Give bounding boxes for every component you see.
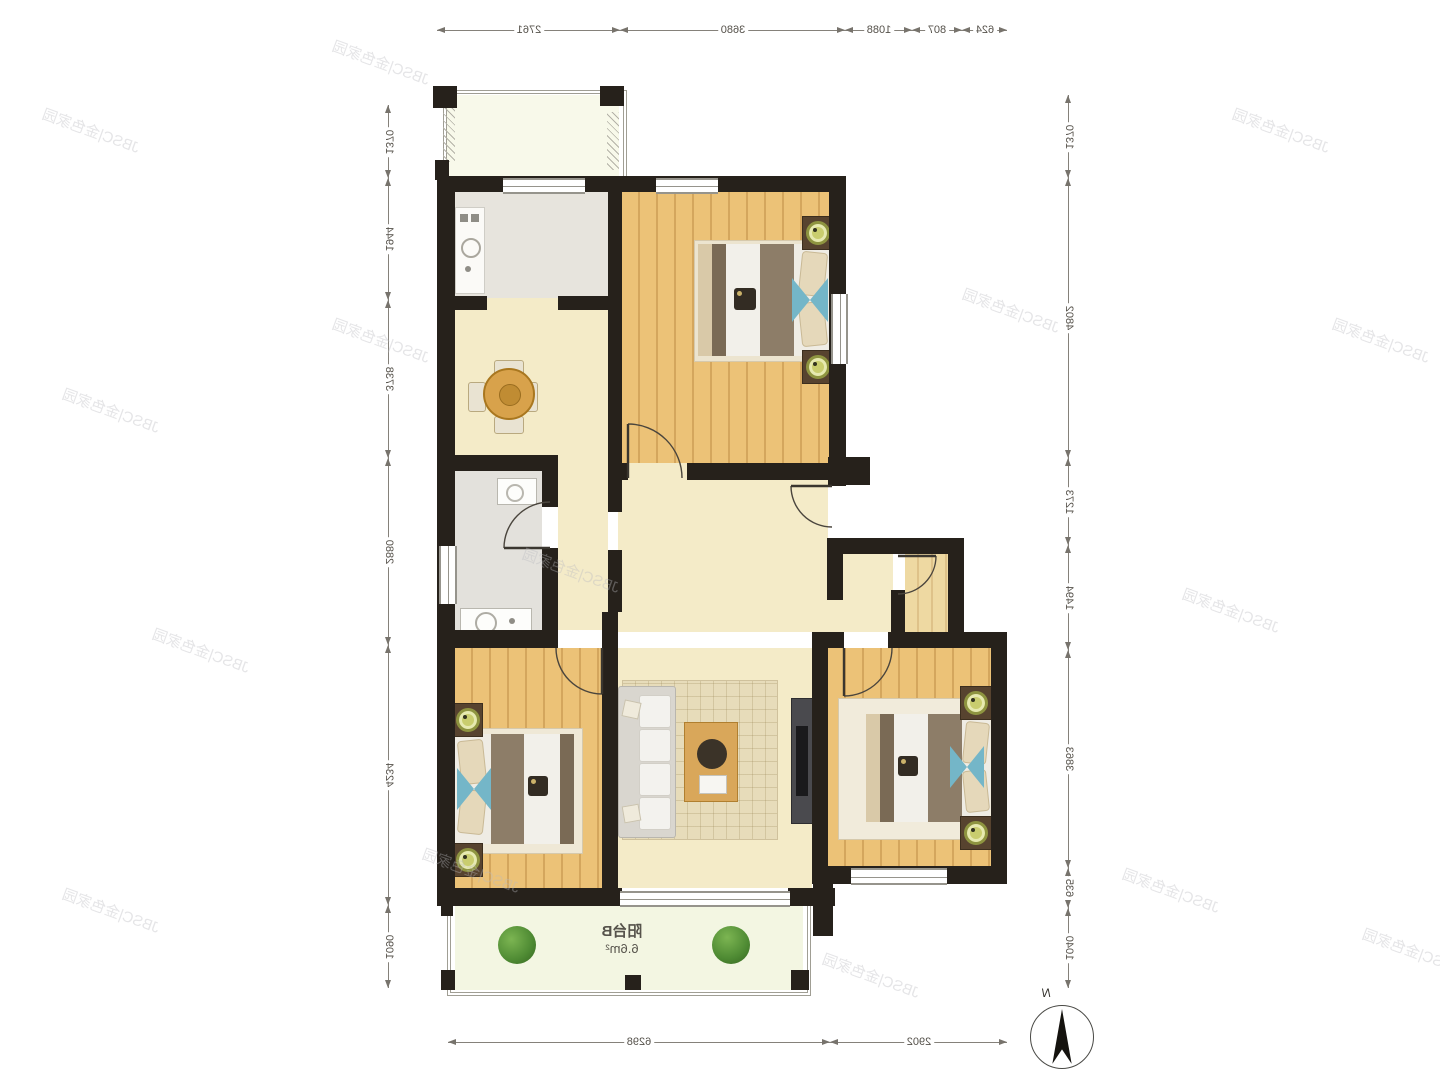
dimension-label: 1944: [383, 224, 395, 254]
north-needle-icon: [1041, 1009, 1083, 1065]
dimension-635: 635: [1068, 868, 1069, 908]
dimension-label: 4234: [383, 760, 395, 790]
dimension-1370: 1370: [1068, 95, 1069, 178]
dimension-label: 1090: [383, 931, 395, 961]
compass: [1030, 1005, 1094, 1069]
door-arc: [556, 648, 602, 694]
dimension-1088: 1088: [845, 30, 912, 31]
dimension-label: 807: [925, 24, 949, 36]
dimension-label: 2902: [903, 1036, 933, 1048]
dimension-label: 3738: [383, 364, 395, 394]
dimension-1494: 1494: [1068, 545, 1069, 650]
dimension-4802: 4802: [1068, 178, 1069, 458]
door-arc: [844, 648, 892, 696]
dimension-1944: 1944: [388, 178, 389, 300]
dimension-label: 1273: [1063, 486, 1075, 516]
dimension-807: 807: [912, 30, 962, 31]
door-arc: [791, 486, 832, 527]
door-arc: [504, 502, 550, 548]
dimension-3680: 3680: [620, 30, 845, 31]
door-arc: [628, 424, 682, 478]
dimension-4234: 4234: [388, 645, 389, 905]
dimension-1040: 1040: [1068, 908, 1069, 988]
dimension-label: 624: [972, 24, 996, 36]
dimension-label: 1370: [383, 126, 395, 156]
dimension-1090: 1090: [388, 905, 389, 988]
dimension-label: 2761: [513, 24, 543, 36]
balcony-label: 阳台B 6.6m²: [570, 920, 674, 956]
dimension-1370: 1370: [388, 105, 389, 178]
dimension-2880: 2880: [388, 458, 389, 645]
north-label: N: [1042, 986, 1051, 1000]
dimension-1273: 1273: [1068, 458, 1069, 545]
dimension-label: 3680: [717, 24, 747, 36]
dimension-2902: 2902: [830, 1042, 1007, 1043]
dimension-label: 1494: [1063, 582, 1075, 612]
dimension-3738: 3738: [388, 300, 389, 458]
door-arc: [898, 556, 936, 594]
dimension-6298: 6298: [448, 1042, 830, 1043]
dimension-label: 4802: [1063, 303, 1075, 333]
dimension-label: 6298: [624, 1036, 654, 1048]
door-arcs-layer: [0, 0, 1440, 1080]
floor-plan: 阳台B 6.6m² N 2761368010888076246298290213…: [0, 0, 1440, 1080]
dimension-label: 2880: [383, 536, 395, 566]
dimension-label: 1088: [863, 24, 893, 36]
dimension-2761: 2761: [437, 30, 620, 31]
balcony-name: 阳台B: [570, 920, 674, 941]
dimension-label: 635: [1063, 876, 1075, 900]
balcony-area: 6.6m²: [570, 941, 674, 956]
dimension-label: 1370: [1063, 121, 1075, 151]
dimension-3863: 3863: [1068, 650, 1069, 868]
dimension-label: 3863: [1063, 744, 1075, 774]
dimension-624: 624: [962, 30, 1007, 31]
dimension-label: 1040: [1063, 933, 1075, 963]
